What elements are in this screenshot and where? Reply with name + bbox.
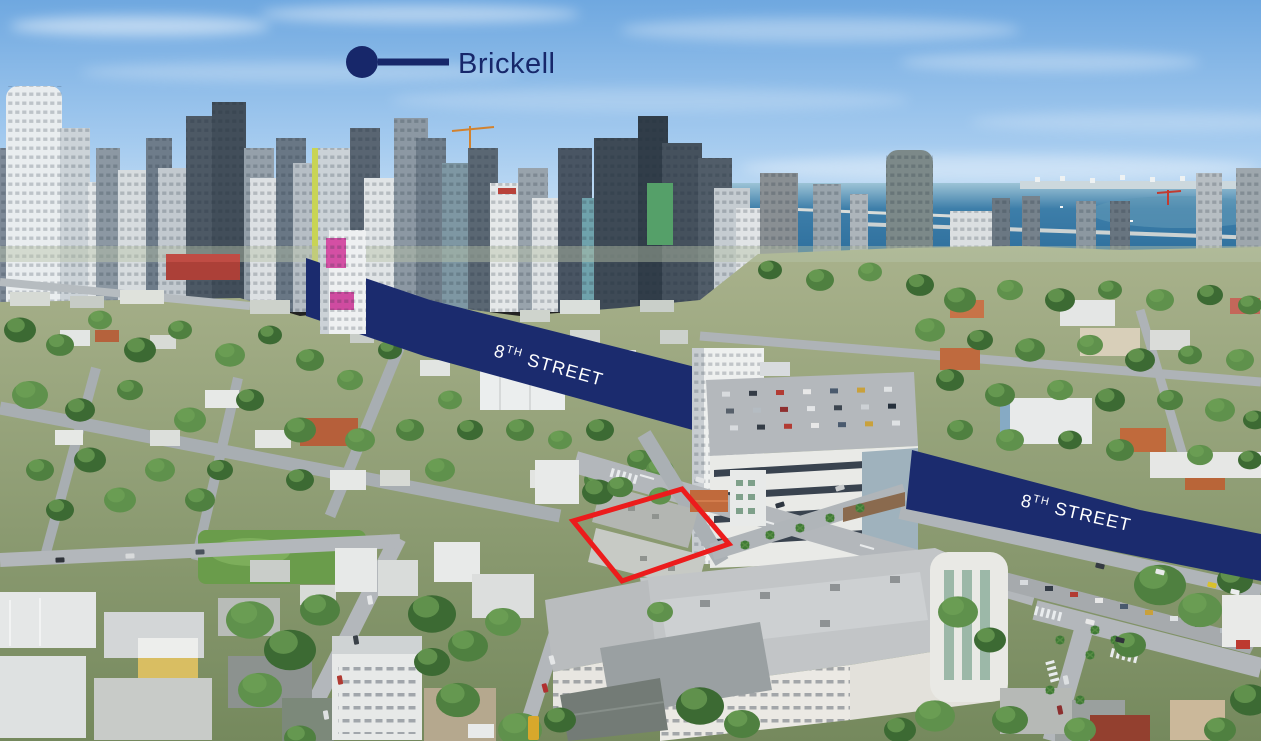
tree-highlight [340,370,354,382]
rooftop-unit [652,514,659,519]
tree-highlight [287,418,305,432]
building [0,592,96,648]
tree-highlight [127,338,145,352]
tree-highlight [489,609,509,625]
tree-highlight [809,270,824,283]
tower-sign [498,188,516,194]
building [205,390,239,408]
tree-highlight [170,321,183,332]
tree-highlight [909,275,924,288]
rooftop-unit [820,620,830,627]
tree-highlight [977,628,995,642]
rooftop-unit [890,576,900,583]
rooftop-unit [640,556,647,561]
parked-car [757,425,765,430]
construction-wrap [647,183,673,245]
tree-highlight [996,707,1016,723]
tower-windows [886,150,933,258]
parked-car [1120,604,1128,609]
tower-windows [416,138,446,312]
car [125,553,134,558]
building [95,330,119,342]
window [748,494,755,500]
tree-highlight [120,380,134,392]
tree-highlight [1245,411,1258,422]
tree-highlight [939,370,954,383]
tree-highlight [269,631,298,654]
tree-highlight [418,649,438,665]
tree-highlight [918,319,935,333]
tree-highlight [1098,389,1115,403]
roof-section [138,638,198,658]
brickell-marker-dot [346,46,378,78]
tree-highlight [218,344,235,358]
parked-car [803,389,811,394]
tree-highlight [399,420,414,433]
distant-city [1090,178,1095,183]
tower-windows [1196,173,1222,258]
tree-highlight [1182,594,1206,614]
tree-highlight [299,350,314,363]
tree-highlight [29,460,44,473]
tree-highlight [1234,685,1256,703]
tree-highlight [502,714,526,734]
distant-building [520,310,550,322]
parked-car [892,421,900,426]
cloud [620,18,1020,42]
distant-city [1150,177,1155,182]
tree-highlight [1100,281,1113,292]
parked-car [884,387,892,392]
building [94,678,212,740]
tree-highlight [1067,718,1085,732]
building [378,560,418,596]
tree-highlight [550,431,563,442]
tree-highlight [1190,445,1204,457]
tree-highlight [304,595,326,613]
parked-car [1045,586,1053,591]
distant-city [1180,176,1185,181]
parked-car [1170,616,1178,621]
tree-highlight [887,718,905,732]
tree-highlight [919,701,941,719]
tree-highlight [1180,346,1193,357]
red-warehouse-roof [166,254,240,262]
tree-highlight [16,382,36,398]
tower-windows [1236,168,1261,258]
apartment-windows [338,660,416,734]
tree-highlight [428,459,445,473]
building [535,460,579,504]
brickell-label: Brickell [458,48,555,80]
parked-car [1070,592,1078,597]
distant-building [120,290,164,304]
tree-highlight [413,596,439,618]
distant-city [1060,176,1065,181]
aerial-location-map: 8TH STREET 8TH STREET Brickell [0,0,1261,741]
car [195,549,204,554]
tree-highlight [970,330,984,342]
tree-highlight [589,420,604,433]
tree-highlight [452,631,474,649]
tree-highlight [242,674,266,694]
window [748,480,755,486]
building [335,548,377,592]
tree-highlight [210,460,224,472]
parked-car [776,390,784,395]
parked-car [1095,598,1103,603]
garage-stair-box [760,362,790,376]
tree-highlight [440,391,453,402]
parked-car [865,421,873,426]
tree-highlight [68,399,85,413]
tree-highlight [231,602,257,624]
cloud [260,5,580,23]
tree-highlight [1000,280,1014,292]
tree-highlight [260,326,273,337]
distant-building [560,300,600,314]
window [736,480,743,486]
building [0,656,86,738]
distant-city [1120,175,1125,180]
tree-highlight [1060,431,1073,442]
store-sign [1236,640,1250,649]
school-bus [528,716,539,740]
apartment-roof [332,636,422,654]
tree-highlight [177,408,195,422]
window [736,494,743,500]
tree-highlight [7,318,25,332]
building [250,560,290,582]
tree-highlight [1240,296,1253,307]
tree-highlight [1139,566,1168,589]
tree-highlight [348,429,365,443]
parked-car [811,423,819,428]
parked-car [722,392,730,397]
tree-highlight [1200,285,1214,297]
parked-car [780,407,788,412]
tree-highlight [760,261,773,272]
tower-windows [760,173,798,258]
tree-highlight [90,311,103,322]
tree-highlight [289,470,304,483]
parked-car [838,422,846,427]
distant-city [1035,177,1040,182]
tower-windows [96,148,120,312]
building [940,348,980,370]
tree-highlight [1207,718,1225,732]
distant-building [10,292,50,306]
tree-highlight [942,597,964,615]
building [150,430,180,446]
building [420,360,450,376]
tree-highlight [947,288,965,302]
tree-highlight [610,477,624,489]
cloud [390,88,910,112]
rooftop-unit [830,584,840,591]
tree-highlight [107,488,125,502]
tree-highlight [239,390,254,403]
tower-windows [212,102,246,312]
parked-car [1020,580,1028,585]
garage-roof-deck [706,372,918,456]
distant-building [640,300,674,312]
tree-highlight [49,500,64,513]
parked-car [888,404,896,409]
tree-highlight [999,430,1014,443]
parked-car [726,409,734,414]
tree-highlight [650,602,664,614]
parked-car [861,404,869,409]
cloud [10,16,270,36]
tree-highlight [1160,390,1174,402]
window [736,508,743,514]
window-column [980,570,990,680]
aerial-photo: 8TH STREET 8TH STREET Brickell [0,0,1261,741]
tree-highlight [1018,339,1035,353]
parked-car [749,391,757,396]
parked-car [807,406,815,411]
tree-highlight [1080,335,1094,347]
distant-building [250,300,290,314]
tree-highlight [440,684,464,704]
tree-highlight [460,420,474,432]
parked-car [834,405,842,410]
far-shore [1020,181,1261,189]
parked-car [753,408,761,413]
parked-car [857,388,865,393]
commercial-building [1222,595,1261,647]
box-truck [468,724,494,738]
tree-highlight [1208,399,1225,413]
tree-highlight [1048,289,1065,303]
tree-highlight [860,263,873,274]
tree-highlight [547,708,565,722]
tree-highlight [188,489,205,503]
tree-highlight [1128,349,1145,363]
parked-car [784,424,792,429]
tree-highlight [1149,290,1164,303]
tree-highlight [950,420,964,432]
tower-windows [594,138,638,312]
tree-highlight [77,448,95,462]
window [748,508,755,514]
pink-tower-windows [320,230,366,334]
red-roof-house [1090,715,1150,741]
building [380,470,410,486]
car [55,557,64,562]
rooftop-unit [760,592,770,599]
tree-highlight [49,335,64,348]
tree-highlight [509,420,524,433]
tree-highlight [728,711,748,727]
parked-car [730,425,738,430]
rooftop-unit [700,600,710,607]
cloud [900,52,1200,72]
tree-highlight [1229,350,1244,363]
building [55,430,83,445]
building [330,470,366,490]
boat [1060,206,1063,208]
tree-highlight [1050,380,1064,392]
tree-highlight [1109,440,1124,453]
tree-highlight [585,480,603,494]
tree-highlight [287,726,305,740]
cloud [80,62,520,82]
distant-building [70,296,104,308]
tree-highlight [988,384,1005,398]
tree-highlight [148,459,165,473]
boat [1130,220,1133,222]
tree-highlight [1240,451,1253,462]
parked-car [830,388,838,393]
tree-highlight [630,450,644,462]
tower-windows [6,86,62,312]
building [660,330,688,344]
tree-highlight [681,688,707,710]
parked-car [1145,610,1153,615]
